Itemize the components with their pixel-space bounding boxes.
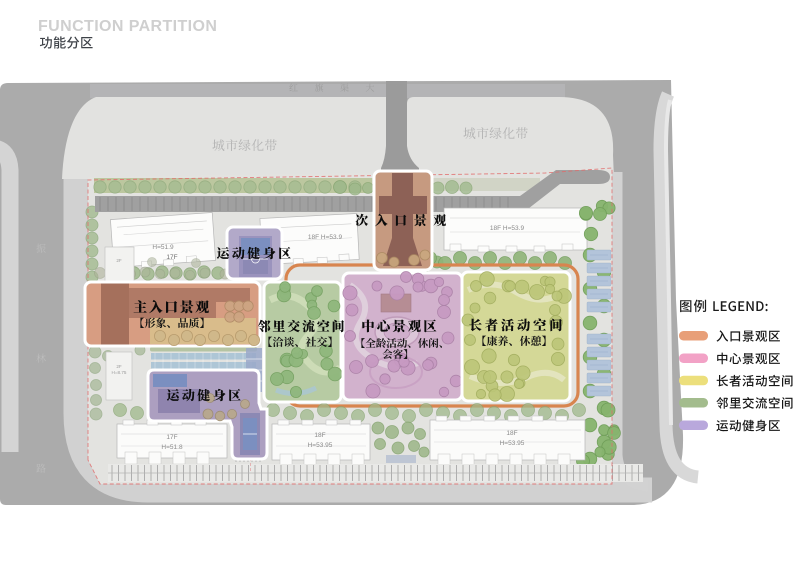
svg-text:18F: 18F — [506, 430, 517, 437]
svg-text:H=51.9: H=51.9 — [152, 244, 174, 251]
svg-text:2F: 2F — [116, 258, 122, 263]
svg-text:17F: 17F — [166, 254, 177, 261]
svg-text:17F: 17F — [166, 434, 177, 441]
svg-text:2F: 2F — [116, 364, 122, 369]
svg-text:H=51.8: H=51.8 — [161, 444, 183, 451]
svg-text:18F: 18F — [314, 432, 325, 439]
svg-text:18F H=53.9: 18F H=53.9 — [308, 234, 343, 241]
svg-text:H=8.75: H=8.75 — [112, 370, 127, 375]
svg-text:H=53.95: H=53.95 — [500, 440, 525, 447]
svg-text:18F H=53.9: 18F H=53.9 — [490, 225, 525, 232]
svg-text:H=53.95: H=53.95 — [308, 442, 333, 449]
